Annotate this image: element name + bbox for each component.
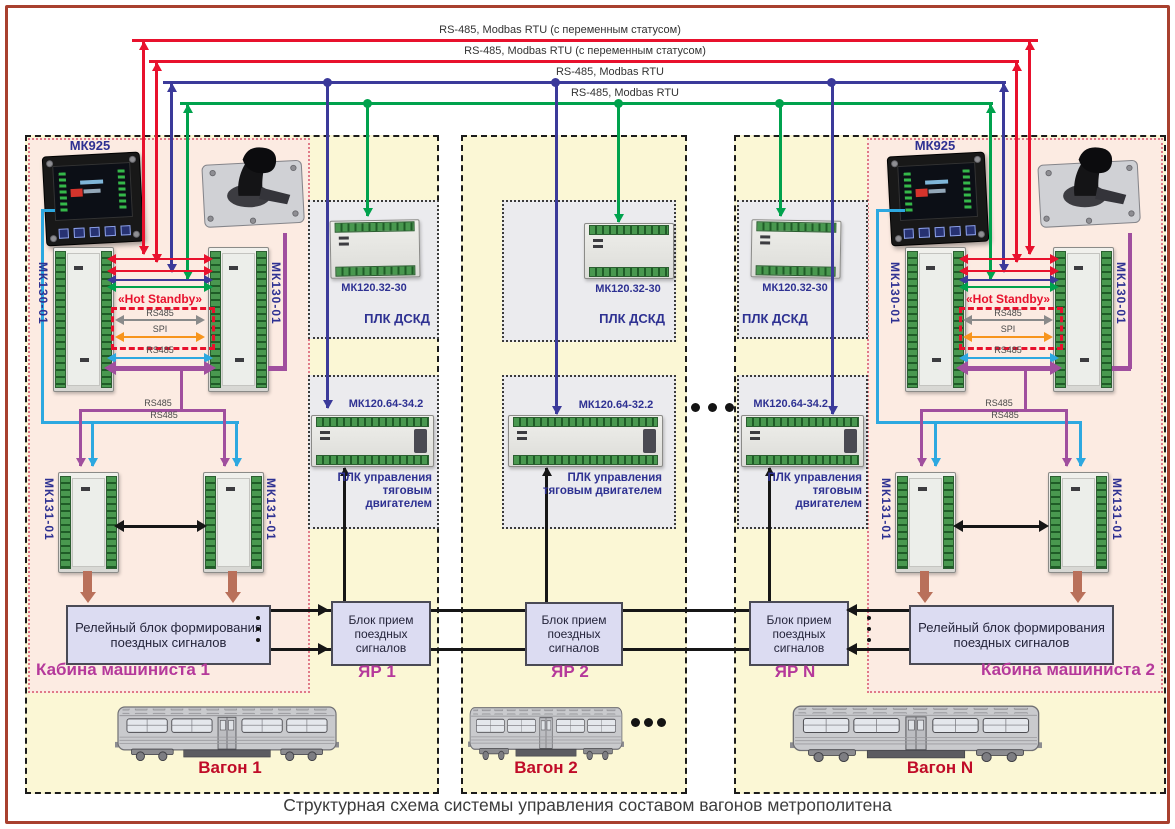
bus-junction-dot [614, 99, 623, 108]
signal-continuation-dots [256, 616, 260, 620]
cab2-mk925-display-image [887, 151, 990, 246]
cab2-mk130-left-label: МК130-01 [888, 262, 902, 377]
cab1-mk131-right-label: МК131-01 [264, 478, 278, 570]
cab2-rs485b-label: RS485 [975, 410, 1035, 420]
yar2-dskd-label: ПЛК ДСКД [560, 312, 665, 327]
yarn-title: ЯР N [763, 662, 827, 682]
cab2-red-link-arrow-2 [967, 270, 1051, 272]
cab2-rs485-mid-label: RS485 [978, 308, 1038, 318]
bus-drop-green-cab2 [989, 105, 992, 279]
omitted-cars-dots [631, 718, 640, 727]
signal-arrow-into-yarn-upper [846, 604, 857, 616]
wagon-1-image [115, 699, 339, 761]
cab1-mk130-right-label: МК130-01 [269, 262, 283, 377]
cab1-relay-feed-arrow-left [83, 571, 92, 593]
cab1-rs485p-drop-left [79, 412, 82, 466]
cab2-rs485-mid-arrow [971, 319, 1045, 321]
cab2-spi-arrow [971, 336, 1045, 338]
signal-continuation-dots [867, 616, 871, 620]
bus-drop-red2-cab2 [1015, 63, 1018, 262]
cab2-title: Кабина машиниста 2 [950, 660, 1155, 680]
yarn-plc-dskd-label: МК120.32-30 [741, 282, 849, 295]
bus-drop-red2-cab1 [155, 63, 158, 262]
cab1-mk131-link-arrow [123, 525, 198, 528]
signal-arrow-into-yar1-upper [318, 604, 329, 616]
bus-label-3: RS-485, Modbas RTU [480, 66, 740, 79]
cab2-mk131-link-arrow [962, 525, 1040, 528]
bus-label-1: RS-485, Modbas RTU (с переменным статусо… [380, 24, 740, 37]
cab2-rs485p-drop-left [920, 412, 923, 466]
yar2-plc-dskd-label: МК120.32-30 [574, 283, 682, 296]
wagon-2-image [468, 700, 624, 760]
cab2-spi-label: SPI [978, 324, 1038, 334]
cab1-spi-label: SPI [130, 324, 190, 334]
cab2-hot-standby-label: «Hot Standby» [956, 293, 1060, 307]
bus-drop-blue-yar1 [326, 83, 329, 408]
bus-junction-dot [827, 78, 836, 87]
signal-continuation-dots [256, 638, 260, 642]
yarn-traction-label: ПЛК управления тяговым двигателем [744, 472, 862, 512]
cab1-mk130-right-image [208, 247, 269, 392]
cab2-rs485b-vertical [876, 209, 879, 424]
bus-drop-green-yar2 [617, 104, 620, 222]
bus-drop-blue-yar2 [555, 83, 558, 414]
yar1-plc-traction-image [311, 415, 434, 467]
cab2-joystick-cable [1128, 233, 1132, 369]
omitted-cars-dots [725, 403, 734, 412]
bus-drop-blue-yarn [831, 83, 834, 414]
bus-junction-dot [551, 78, 560, 87]
cab2-rs485b-stub [876, 209, 905, 212]
bus-label-4: RS-485, Modbas RTU [495, 87, 755, 100]
bus-drop-blue-cab1 [170, 84, 173, 272]
bus-drop-blue-cab2 [1002, 84, 1005, 272]
omitted-cars-dots [691, 403, 700, 412]
cab1-rs485b-horizontal [41, 421, 239, 424]
cab1-title: Кабина машиниста 1 [36, 660, 286, 680]
signal-arrow-into-yarn-lower [846, 643, 857, 655]
cab1-mk131-left-image [58, 472, 119, 573]
wagon-n-label: Вагон N [855, 758, 1025, 778]
bus-drop-red1-cab1 [142, 42, 145, 254]
diagram-caption: Структурная схема системы управления сос… [0, 795, 1175, 816]
signal-continuation-dots [867, 627, 871, 631]
bus-drop-green-yarn [779, 104, 782, 216]
cab2-mk925-label: МК925 [885, 139, 985, 154]
cab1-mk131-right-image [203, 472, 264, 573]
cab2-mk131-left-image [895, 472, 956, 573]
cab1-rs485-mid-label: RS485 [130, 308, 190, 318]
cab2-joystick-image [1036, 140, 1142, 228]
cab2-green-link-arrow [967, 286, 1051, 288]
cab2-rs485-low-label: RS485 [978, 345, 1038, 355]
yar2-plc-dskd-image [584, 223, 674, 279]
wagon-n-image [790, 698, 1042, 762]
cab1-blue-link-arrow [115, 279, 205, 281]
cab2-relay-block: Релейный блок формирования поездных сигн… [909, 605, 1114, 665]
cab2-rs485-low-arrow [967, 357, 1051, 359]
yar2-plc-traction-label: МК120.64-32.2 [568, 399, 664, 412]
cab1-mk925-display-image [42, 151, 145, 246]
cab2-mk131-right-image [1048, 472, 1109, 573]
bus-drop-red1-cab2 [1028, 42, 1031, 254]
cab1-spi-arrow [123, 336, 197, 338]
bus-label-2: RS-485, Modbas RTU (с переменным статусо… [405, 45, 765, 58]
yar2-title: ЯР 2 [538, 662, 602, 682]
cab1-rs485b-drop-right [235, 424, 238, 466]
cab2-rs485b-horizontal [876, 421, 1082, 424]
cab2-mk131-right-label: МК131-01 [1110, 478, 1124, 570]
diagram-canvas: RS-485, Modbas RTU (с переменным статусо… [0, 0, 1175, 829]
omitted-cars-dots [657, 718, 666, 727]
omitted-cars-dots [708, 403, 717, 412]
cab2-mk131-left-label: МК131-01 [879, 478, 893, 570]
cab1-mk925-label: МК925 [40, 139, 140, 154]
cab1-mk131-left-label: МК131-01 [42, 478, 56, 570]
cab1-relay-feed-arrow-right [228, 571, 237, 593]
yarn-plc-dskd-image [751, 219, 842, 279]
cab1-rs485-mid-arrow [123, 319, 197, 321]
cab1-rs485-low-arrow [115, 357, 205, 359]
yar1-plc-dskd-image [330, 219, 421, 279]
yar2-traction-label: ПЛК управления тяговым двигателем [540, 472, 662, 498]
signal-continuation-dots [867, 638, 871, 642]
cab1-joystick-cable [283, 233, 287, 369]
wagon-2-label: Вагон 2 [468, 758, 624, 778]
bus-line-red2 [149, 60, 1019, 63]
yar2-plc-traction-image [508, 415, 663, 467]
cab1-green-link-arrow [115, 286, 205, 288]
cab1-purple-link-arrow [115, 366, 205, 371]
bus-junction-dot [775, 99, 784, 108]
cab1-relay-block: Релейный блок формирования поездных сигн… [66, 605, 271, 665]
bus-junction-dot [323, 78, 332, 87]
cab1-rs485p-drop-right [223, 412, 226, 466]
cab2-blue-link-arrow [967, 279, 1051, 281]
yar1-dskd-label: ПЛК ДСКД [325, 312, 430, 327]
wagon-1-label: Вагон 1 [150, 758, 310, 778]
yar1-plc-traction-label: МК120.64-34.2 [338, 398, 434, 411]
yarn-plc-traction-label: МК120.64-34.2 [738, 398, 828, 411]
yar1-receiver-block: Блок прием поездных сигналов [331, 601, 431, 666]
bus-drop-green-yar1 [366, 104, 369, 216]
cab1-hot-standby-label: «Hot Standby» [108, 293, 212, 307]
cab2-rs485p-label: RS485 [969, 398, 1029, 408]
cab1-rs485p-label: RS485 [128, 398, 188, 408]
bus-drop-green-cab1 [186, 105, 189, 279]
cab2-purple-link-arrow [967, 366, 1051, 371]
yar1-plc-dskd-label: МК120.32-30 [320, 282, 428, 295]
cab1-red-link-arrow-2 [115, 270, 205, 272]
cab2-rs485b-drop-left [934, 424, 937, 466]
bus-line-blue [163, 81, 1006, 84]
cab1-rs485b-label: RS485 [134, 410, 194, 420]
cab2-mk130-right-label: МК130-01 [1114, 262, 1128, 377]
cab1-rs485b-drop-left [91, 424, 94, 466]
cab1-rs485-low-label: RS485 [130, 345, 190, 355]
cab1-mk130-left-label: МК130-01 [36, 262, 50, 377]
cab1-joystick-image [200, 140, 306, 228]
cab2-rs485b-drop-right [1079, 424, 1082, 466]
omitted-cars-dots [644, 718, 653, 727]
yarn-plc-traction-image [741, 415, 864, 467]
cab2-relay-feed-arrow-right [1073, 571, 1082, 593]
cab2-red-link-arrow-1 [967, 258, 1051, 260]
signal-continuation-dots [256, 627, 260, 631]
cab1-red-link-arrow-1 [115, 258, 205, 260]
yarn-receiver-block: Блок прием поездных сигналов [749, 601, 849, 666]
cab2-rs485p-drop-right [1065, 412, 1068, 466]
bus-junction-dot [363, 99, 372, 108]
yarn-dskd-label: ПЛК ДСКД [742, 312, 842, 327]
yar2-receiver-block: Блок прием поездных сигналов [525, 602, 623, 666]
signal-arrow-into-yar1-lower [318, 643, 329, 655]
yar1-title: ЯР 1 [345, 662, 409, 682]
yar1-traction-label: ПЛК управления тяговым двигателем [315, 472, 432, 512]
bus-line-red1 [132, 39, 1038, 42]
cab2-relay-feed-arrow-left [920, 571, 929, 593]
bus-line-green [180, 102, 993, 105]
